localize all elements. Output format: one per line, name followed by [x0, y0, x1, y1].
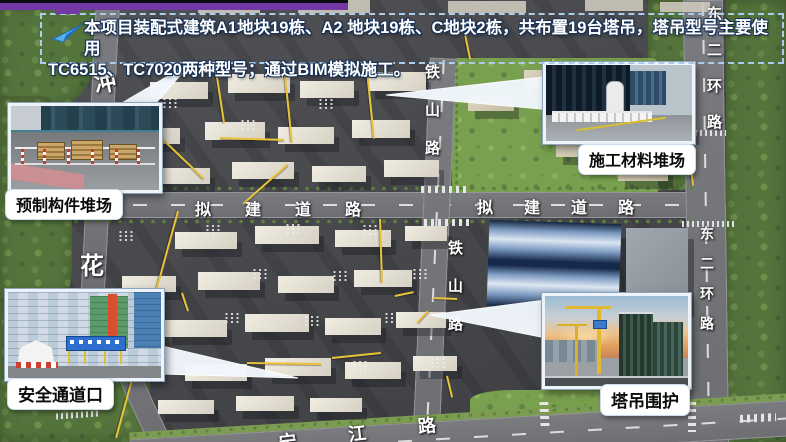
- banner-line-1: 本项目装配式建筑A1地块19栋、A2 地块19栋、C地块2栋，共布置19台塔吊，…: [84, 18, 780, 60]
- photo-detail: [593, 320, 607, 329]
- photo-detail: [619, 312, 653, 380]
- photo-detail: [137, 149, 140, 164]
- photo-detail: [16, 362, 58, 368]
- photo-detail: [606, 81, 624, 113]
- slide-top-bar-nub: [55, 10, 79, 14]
- callout-pointer: [162, 346, 298, 378]
- callout-label-material: 施工材料堆场: [578, 144, 696, 175]
- photo-detail: [21, 149, 24, 164]
- photo-detail: [653, 322, 683, 378]
- photo-detail: [91, 149, 94, 164]
- callout-label-crane: 塔吊围护: [600, 384, 690, 416]
- photo-detail: [109, 144, 137, 160]
- banner-line-2: TC6515、TC7020两种型号；通过BIM模拟施工。: [48, 60, 780, 81]
- slide-top-bar: [0, 0, 348, 10]
- photo-detail: [557, 324, 587, 326]
- safety-passage-photo: [5, 289, 164, 381]
- photo-detail: [37, 142, 65, 160]
- photo-detail: [115, 149, 118, 164]
- precast-yard-photo: [8, 103, 162, 193]
- photo-detail: [11, 106, 41, 132]
- tower-crane-photo: [542, 293, 691, 389]
- callout-pointer: [430, 300, 546, 338]
- photo-detail: [15, 163, 155, 165]
- photo-detail: [575, 324, 578, 376]
- photo-detail: [67, 149, 70, 164]
- photo-detail: [43, 149, 46, 164]
- photo-detail: [66, 336, 126, 351]
- callout-label-safety: 安全通道口: [7, 378, 114, 410]
- photo-detail: [565, 306, 611, 309]
- callout-pointer: [386, 76, 552, 110]
- callout-label-precast: 预制构件堆场: [5, 189, 123, 220]
- title-banner: 本项目装配式建筑A1地块19栋、A2 地块19栋、C地块2栋，共布置19台塔吊，…: [40, 13, 784, 64]
- paper-plane-arrow-icon: [52, 23, 82, 43]
- photo-detail: [545, 340, 601, 362]
- bim-site-slide: 拟建道路 拟建道路 铁山路 铁山路 东二环路 东二环路 宁江路 花 冲: [0, 0, 786, 442]
- photo-detail: [134, 292, 161, 348]
- photo-detail: [71, 140, 103, 160]
- photo-detail: [70, 340, 120, 344]
- photo-detail: [597, 306, 601, 374]
